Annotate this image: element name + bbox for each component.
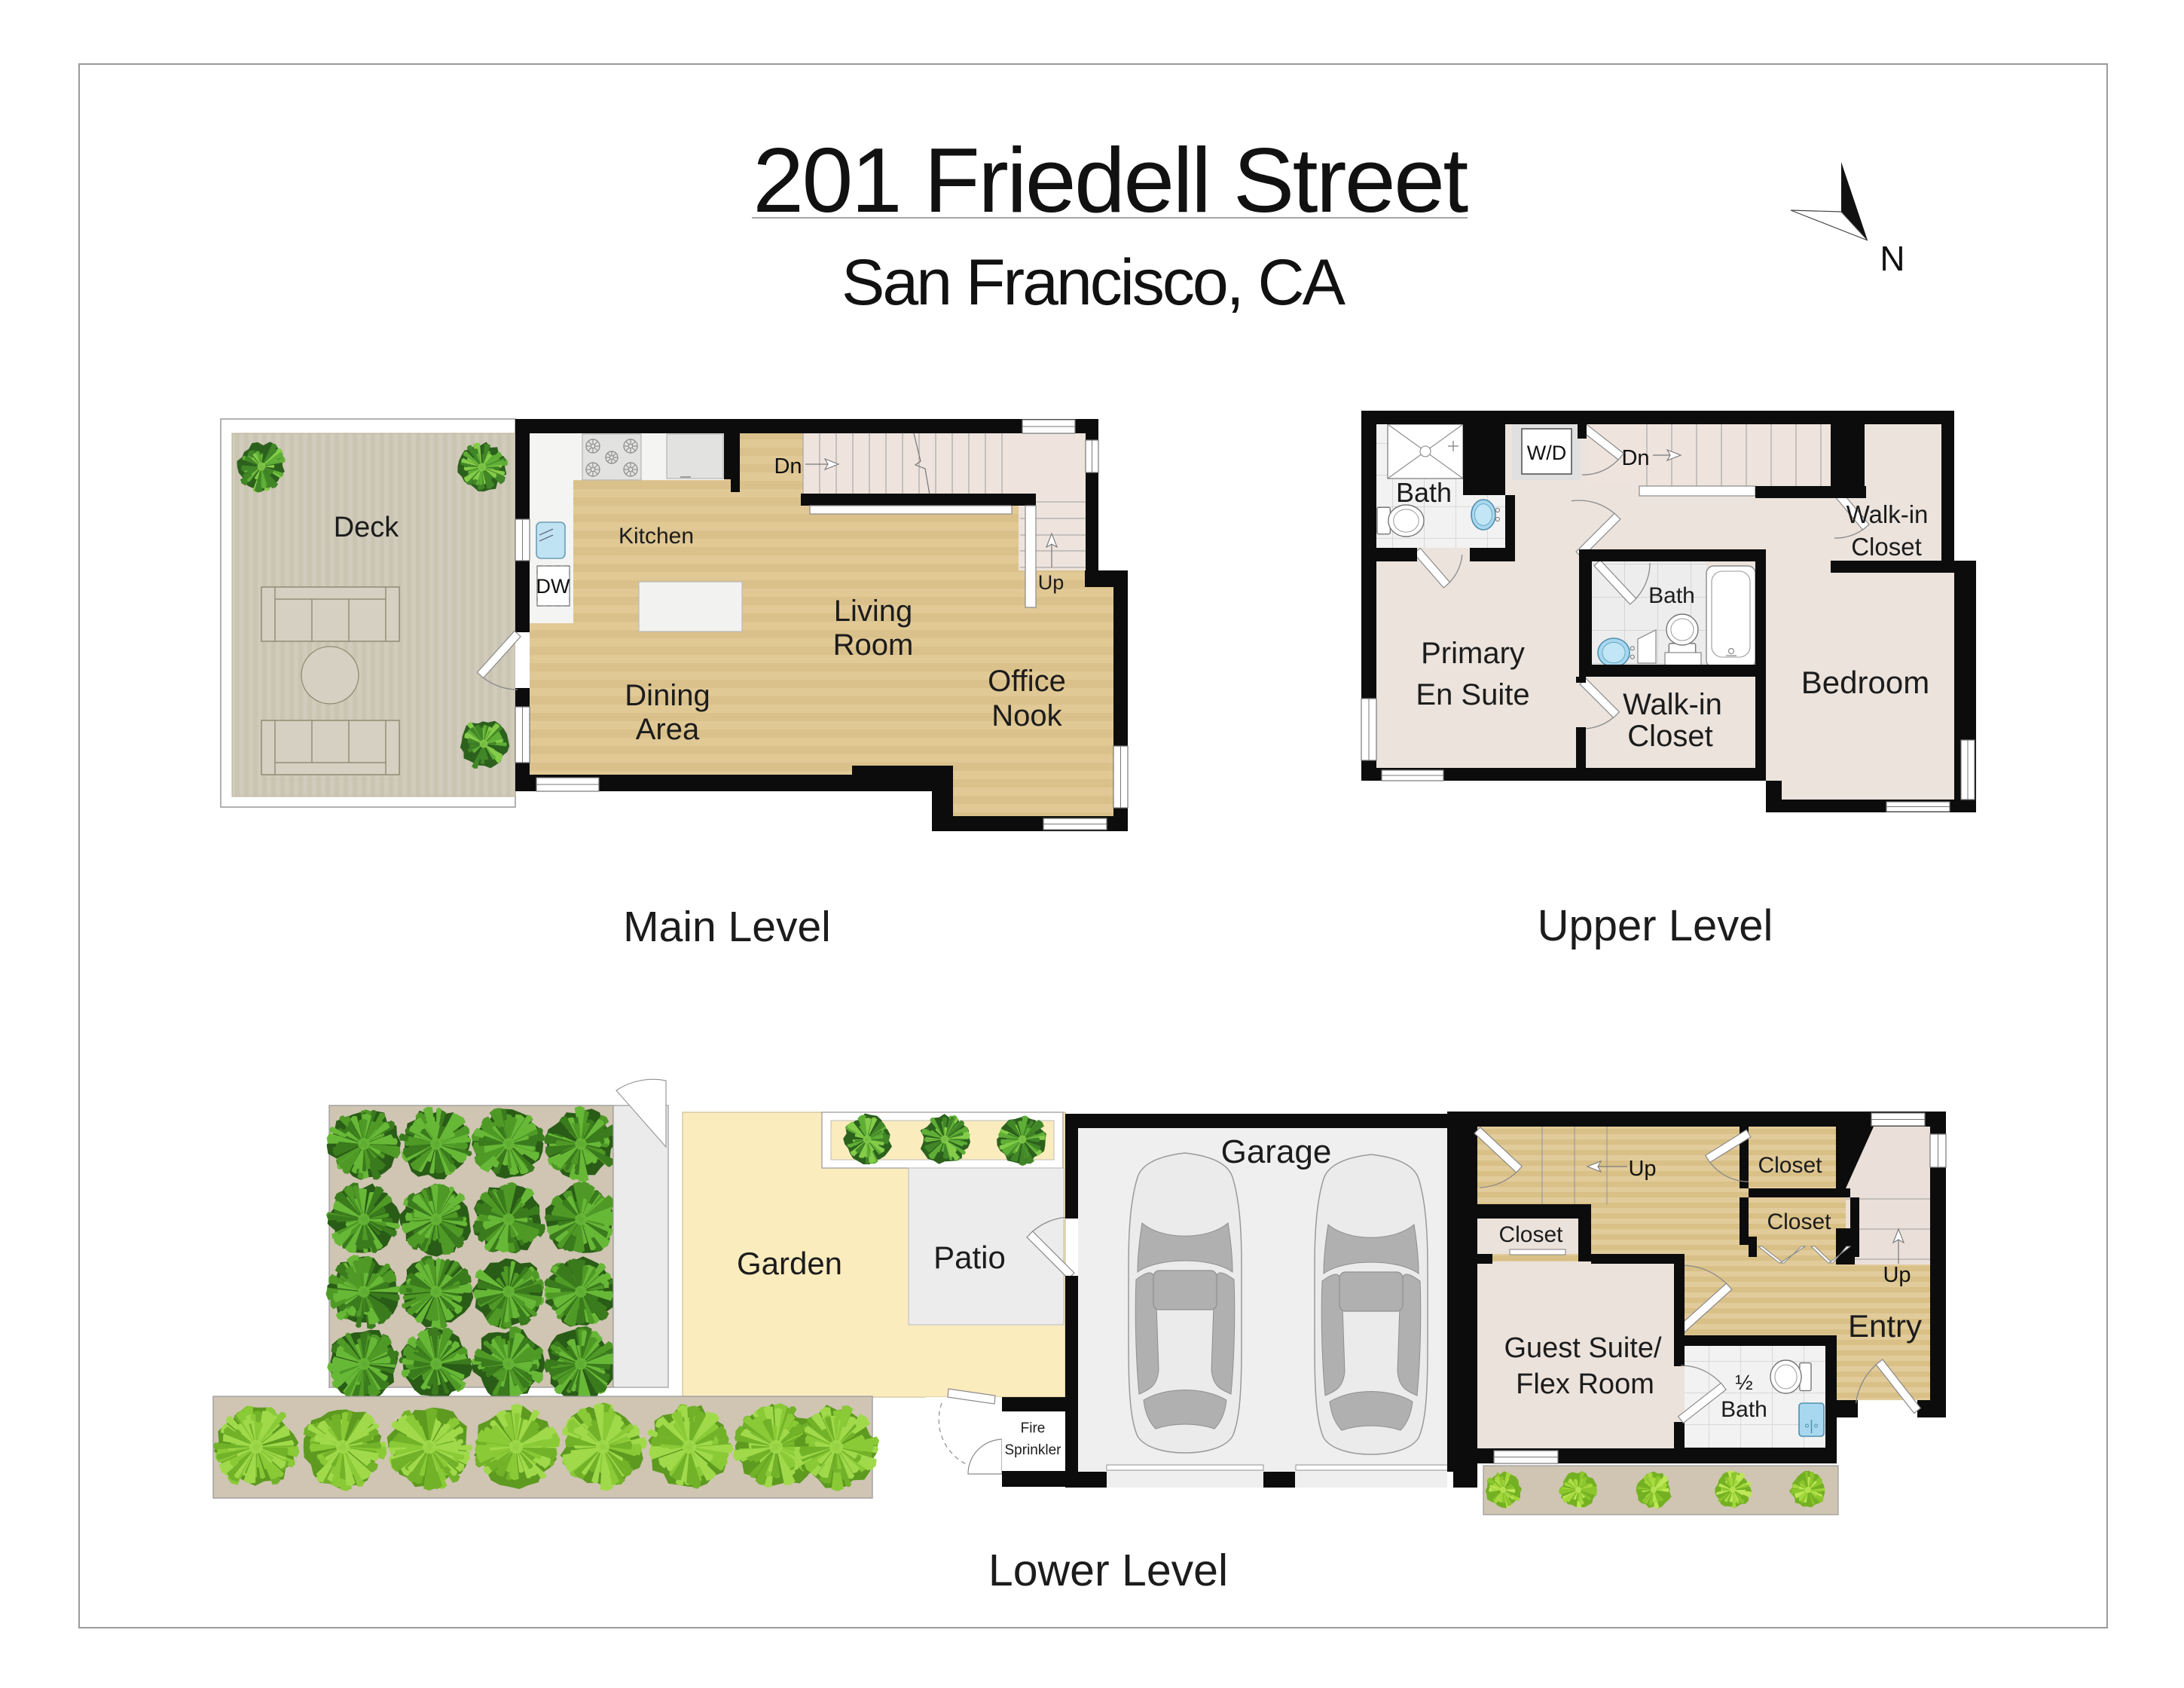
svg-text:½: ½ xyxy=(1735,1371,1752,1394)
svg-text:Main Level: Main Level xyxy=(623,903,831,951)
svg-text:Garage: Garage xyxy=(1221,1133,1332,1170)
svg-text:Entry: Entry xyxy=(1848,1308,1922,1344)
svg-text:DW: DW xyxy=(536,575,570,598)
svg-text:Flex Room: Flex Room xyxy=(1516,1368,1654,1400)
svg-text:Bath: Bath xyxy=(1721,1397,1767,1422)
svg-text:Lower Level: Lower Level xyxy=(988,1546,1228,1595)
svg-text:Walk-in: Walk-in xyxy=(1846,500,1929,528)
svg-text:Closet: Closet xyxy=(1758,1153,1822,1178)
svg-text:W/D: W/D xyxy=(1527,442,1566,464)
svg-text:Bath: Bath xyxy=(1648,583,1695,608)
svg-text:Up: Up xyxy=(1628,1157,1656,1181)
svg-text:Guest Suite/: Guest Suite/ xyxy=(1504,1332,1662,1364)
svg-text:Deck: Deck xyxy=(334,512,400,543)
svg-text:En Suite: En Suite xyxy=(1416,678,1529,711)
svg-text:Patio: Patio xyxy=(933,1240,1006,1275)
svg-text:Nook: Nook xyxy=(991,699,1062,732)
svg-text:201 Friedell Street: 201 Friedell Street xyxy=(753,129,1468,231)
svg-text:Dn: Dn xyxy=(1621,446,1649,470)
svg-text:San Francisco, CA: San Francisco, CA xyxy=(842,246,1346,319)
svg-text:Dn: Dn xyxy=(774,454,802,479)
svg-text:Room: Room xyxy=(833,628,914,662)
svg-text:Garden: Garden xyxy=(737,1246,842,1281)
svg-text:Upper Level: Upper Level xyxy=(1538,901,1773,950)
svg-text:Closet: Closet xyxy=(1851,533,1922,561)
svg-text:Area: Area xyxy=(636,713,700,746)
svg-text:Fire: Fire xyxy=(1021,1420,1046,1436)
svg-text:Closet: Closet xyxy=(1498,1222,1563,1247)
svg-text:Up: Up xyxy=(1883,1263,1911,1287)
svg-text:Living: Living xyxy=(834,595,913,628)
svg-text:Kitchen: Kitchen xyxy=(619,524,694,549)
svg-text:Primary: Primary xyxy=(1421,637,1525,670)
svg-text:Closet: Closet xyxy=(1627,720,1712,753)
svg-text:Sprinkler: Sprinkler xyxy=(1005,1442,1062,1458)
svg-text:Closet: Closet xyxy=(1767,1209,1831,1234)
svg-text:Walk-in: Walk-in xyxy=(1623,688,1722,721)
svg-text:Office: Office xyxy=(988,665,1066,698)
svg-text:Bedroom: Bedroom xyxy=(1801,665,1929,700)
svg-text:N: N xyxy=(1880,239,1905,278)
svg-text:Bath: Bath xyxy=(1396,477,1452,508)
svg-text:Dining: Dining xyxy=(625,679,710,712)
svg-text:Up: Up xyxy=(1038,571,1065,594)
